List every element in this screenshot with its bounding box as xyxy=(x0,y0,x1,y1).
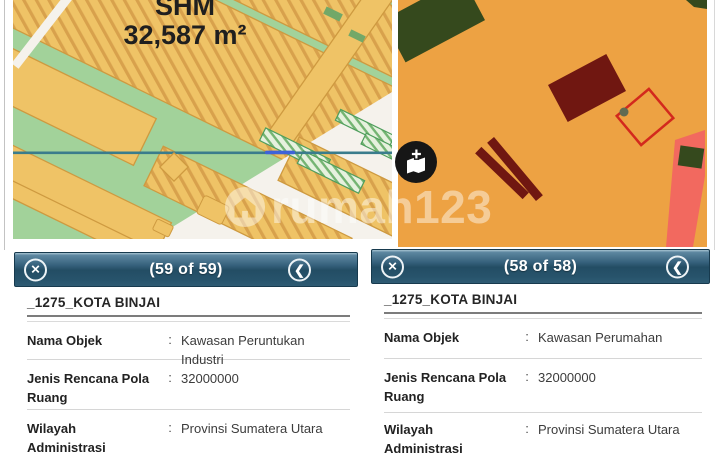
row-colon: : xyxy=(516,421,538,459)
map-layers-button[interactable] xyxy=(395,141,437,183)
attributes-table: _1275_KOTA BINJAI Nama Objek : Kawasan P… xyxy=(371,292,710,453)
boundary-line-highlight xyxy=(265,151,295,155)
row-value: Kawasan Peruntukan Industri xyxy=(181,332,350,370)
row-label: Nama Objek xyxy=(27,332,155,370)
close-button[interactable]: ✕ xyxy=(381,255,404,278)
row-label: Wilayah Administrasi xyxy=(27,420,155,458)
row-label: Jenis Rencana Pola Ruang xyxy=(27,370,155,409)
table-row: Wilayah Administrasi : Provinsi Sumatera… xyxy=(384,413,702,453)
back-button[interactable]: ❮ xyxy=(288,258,311,281)
result-counter: (58 of 58) xyxy=(504,258,577,276)
attributes-table: _1275_KOTA BINJAI Nama Objek : Kawasan P… xyxy=(14,295,358,452)
zoning-map-right[interactable] xyxy=(398,0,707,247)
close-button[interactable]: ✕ xyxy=(24,258,47,281)
row-label: Jenis Rencana Pola Ruang xyxy=(384,369,512,412)
panel-header-left: ✕ (59 of 59) ❮ xyxy=(14,252,358,287)
boundary-line xyxy=(13,152,392,155)
row-label: Nama Objek xyxy=(384,329,512,358)
row-colon: : xyxy=(516,369,538,412)
zoning-map-left-image: SHM 32,587 m² xyxy=(13,0,392,239)
info-panel-right: ✕ (58 of 58) ❮ _1275_KOTA BINJAI Nama Ob… xyxy=(371,249,710,420)
row-value: Provinsi Sumatera Utara xyxy=(538,421,702,459)
zoning-map-left[interactable]: SHM 32,587 m² xyxy=(13,0,392,239)
panel-header-right: ✕ (58 of 58) ❮ xyxy=(371,249,710,284)
back-button[interactable]: ❮ xyxy=(666,255,689,278)
info-panel-left: ✕ (59 of 59) ❮ _1275_KOTA BINJAI Nama Ob… xyxy=(14,252,358,420)
row-colon: : xyxy=(159,420,181,458)
table-row: Nama Objek : Kawasan Perumahan xyxy=(384,319,702,359)
row-label: Wilayah Administrasi xyxy=(384,421,512,459)
row-colon: : xyxy=(516,329,538,358)
table-row: Jenis Rencana Pola Ruang : 32000000 xyxy=(384,359,702,413)
region-title: _1275_KOTA BINJAI xyxy=(384,292,702,314)
row-colon: : xyxy=(159,332,181,370)
zoning-map-right-image xyxy=(398,0,707,247)
screenshot-left-border xyxy=(4,0,5,250)
row-value: 32000000 xyxy=(538,369,702,412)
parcel-label-title: SHM xyxy=(155,0,215,21)
row-value: Provinsi Sumatera Utara xyxy=(181,420,350,458)
row-colon: : xyxy=(159,370,181,409)
screenshot-right-border xyxy=(714,0,715,250)
table-row: Wilayah Administrasi : Provinsi Sumatera… xyxy=(27,410,350,452)
result-counter: (59 of 59) xyxy=(149,261,222,279)
row-value: 32000000 xyxy=(181,370,350,409)
parcel-label-area: 32,587 m² xyxy=(123,20,246,50)
row-value: Kawasan Perumahan xyxy=(538,329,702,358)
region-title: _1275_KOTA BINJAI xyxy=(27,295,350,317)
table-row: Nama Objek : Kawasan Peruntukan Industri xyxy=(27,322,350,360)
parcel-marker-dot xyxy=(620,108,629,117)
